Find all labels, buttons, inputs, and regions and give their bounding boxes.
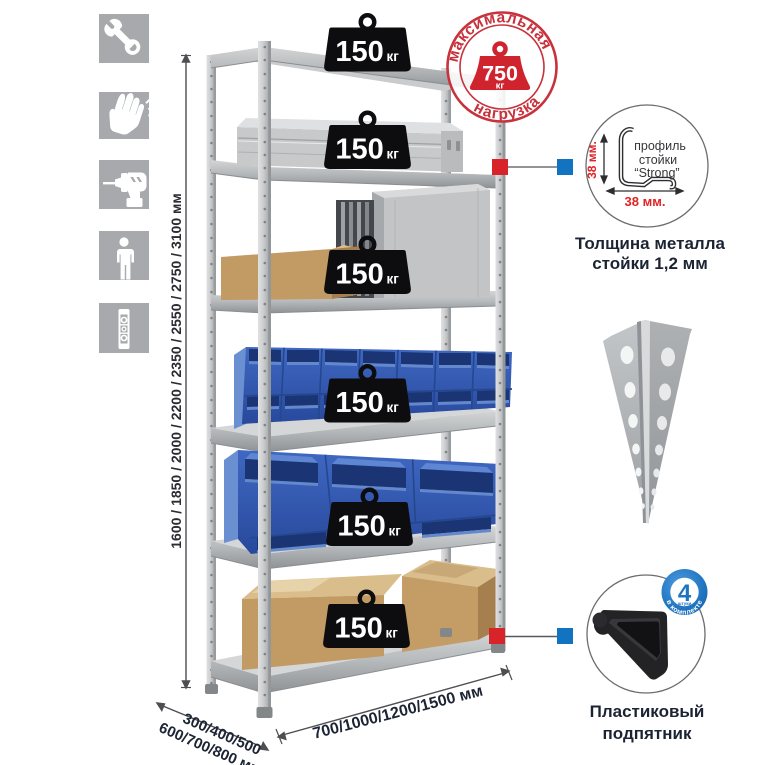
svg-text:150: 150 — [334, 613, 382, 645]
svg-text:150: 150 — [335, 36, 383, 68]
svg-text:стойки 1,2 мм: стойки 1,2 мм — [592, 254, 708, 273]
svg-text:стойки: стойки — [639, 153, 677, 167]
svg-text:150: 150 — [335, 387, 383, 419]
svg-text:38 мм.: 38 мм. — [585, 141, 599, 179]
svg-text:1600 / 1850 / 2000 / 2200 / 23: 1600 / 1850 / 2000 / 2200 / 2350 / 2550 … — [168, 193, 184, 548]
svg-text:150: 150 — [335, 134, 383, 166]
svg-text:профиль: профиль — [634, 139, 686, 153]
svg-text:кг: кг — [496, 81, 505, 92]
svg-text:кг: кг — [389, 524, 402, 539]
svg-text:Толщина металла: Толщина металла — [575, 234, 725, 253]
svg-text:кг: кг — [386, 626, 399, 641]
svg-text:“Strong”: “Strong” — [634, 166, 679, 180]
svg-text:150: 150 — [337, 511, 385, 543]
svg-text:кг: кг — [387, 272, 400, 287]
svg-text:подпятник: подпятник — [603, 724, 692, 743]
svg-text:Пластиковый: Пластиковый — [590, 702, 705, 721]
svg-text:кг: кг — [387, 49, 400, 64]
svg-text:кг: кг — [387, 147, 400, 162]
svg-text:штуки: штуки — [678, 601, 692, 606]
svg-text:700/1000/1200/1500 мм: 700/1000/1200/1500 мм — [311, 683, 485, 743]
svg-text:кг: кг — [387, 400, 400, 415]
svg-text:150: 150 — [335, 259, 383, 291]
svg-text:38 мм.: 38 мм. — [625, 194, 666, 209]
